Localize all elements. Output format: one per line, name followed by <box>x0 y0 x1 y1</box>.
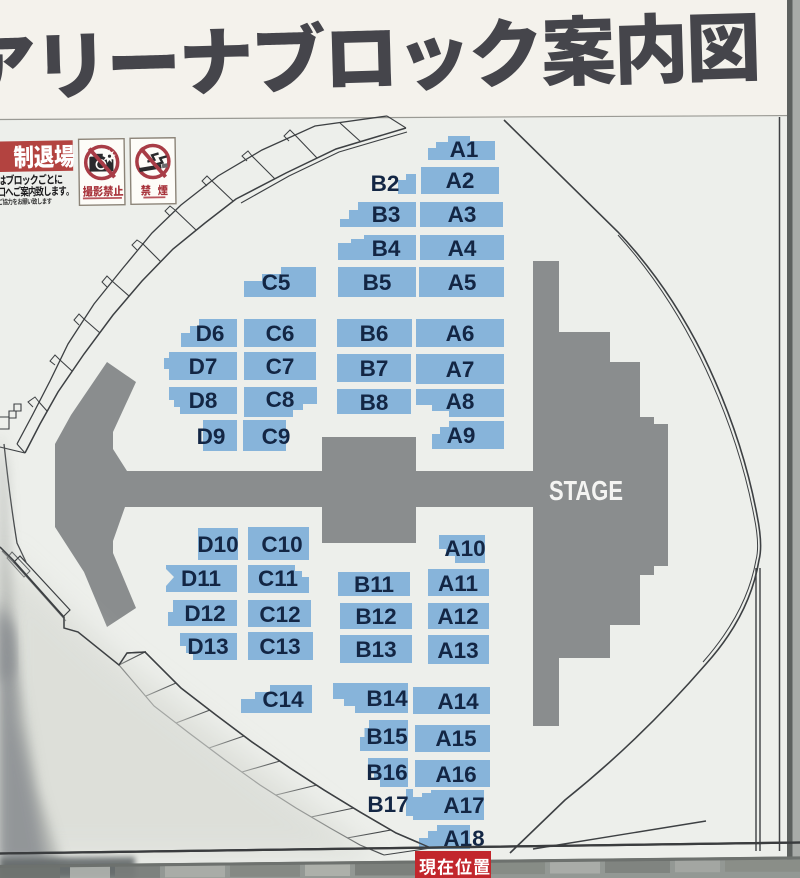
svg-text:A11: A11 <box>438 571 478 596</box>
svg-text:D6: D6 <box>196 321 225 346</box>
svg-text:D11: D11 <box>181 566 221 591</box>
svg-text:B13: B13 <box>355 637 396 662</box>
svg-text:B4: B4 <box>372 236 401 261</box>
svg-text:C11: C11 <box>258 566 298 591</box>
svg-text:D13: D13 <box>187 634 228 659</box>
svg-text:A1: A1 <box>450 137 479 162</box>
svg-text:C6: C6 <box>266 321 295 346</box>
svg-text:B5: B5 <box>363 270 392 295</box>
svg-text:A12: A12 <box>437 604 478 629</box>
svg-text:A14: A14 <box>437 689 479 714</box>
svg-text:C10: C10 <box>261 532 302 557</box>
svg-text:B17: B17 <box>367 792 408 817</box>
svg-text:B15: B15 <box>366 724 407 749</box>
svg-text:D10: D10 <box>197 532 238 557</box>
svg-text:D8: D8 <box>189 388 218 413</box>
svg-text:B7: B7 <box>360 356 389 381</box>
svg-text:D7: D7 <box>189 354 218 379</box>
svg-text:C14: C14 <box>262 687 304 712</box>
svg-text:C12: C12 <box>259 602 300 627</box>
svg-text:C13: C13 <box>259 634 300 659</box>
svg-text:B6: B6 <box>360 321 389 346</box>
svg-text:A7: A7 <box>446 357 475 382</box>
svg-text:D12: D12 <box>184 601 225 626</box>
svg-text:A5: A5 <box>448 270 477 295</box>
svg-text:A8: A8 <box>446 389 475 414</box>
svg-text:C7: C7 <box>266 354 295 379</box>
svg-text:B12: B12 <box>355 604 396 629</box>
svg-text:A17: A17 <box>443 793 484 818</box>
svg-text:B2: B2 <box>371 171 400 196</box>
svg-text:A10: A10 <box>444 536 485 561</box>
svg-text:D9: D9 <box>197 424 226 449</box>
svg-text:B8: B8 <box>360 390 389 415</box>
svg-text:B14: B14 <box>366 686 408 711</box>
svg-text:B16: B16 <box>366 760 407 785</box>
svg-text:A3: A3 <box>448 202 477 227</box>
svg-text:A9: A9 <box>447 423 476 448</box>
svg-text:A13: A13 <box>437 638 478 663</box>
svg-text:B11: B11 <box>354 572 394 597</box>
svg-text:B3: B3 <box>372 202 401 227</box>
svg-text:STAGE: STAGE <box>549 475 623 506</box>
svg-text:A16: A16 <box>435 762 476 787</box>
svg-text:A6: A6 <box>446 321 475 346</box>
svg-text:C5: C5 <box>262 270 291 295</box>
svg-text:A4: A4 <box>448 236 477 261</box>
svg-text:A2: A2 <box>446 168 475 193</box>
svg-text:C8: C8 <box>266 387 295 412</box>
svg-text:C9: C9 <box>262 424 291 449</box>
svg-text:A15: A15 <box>435 726 476 751</box>
